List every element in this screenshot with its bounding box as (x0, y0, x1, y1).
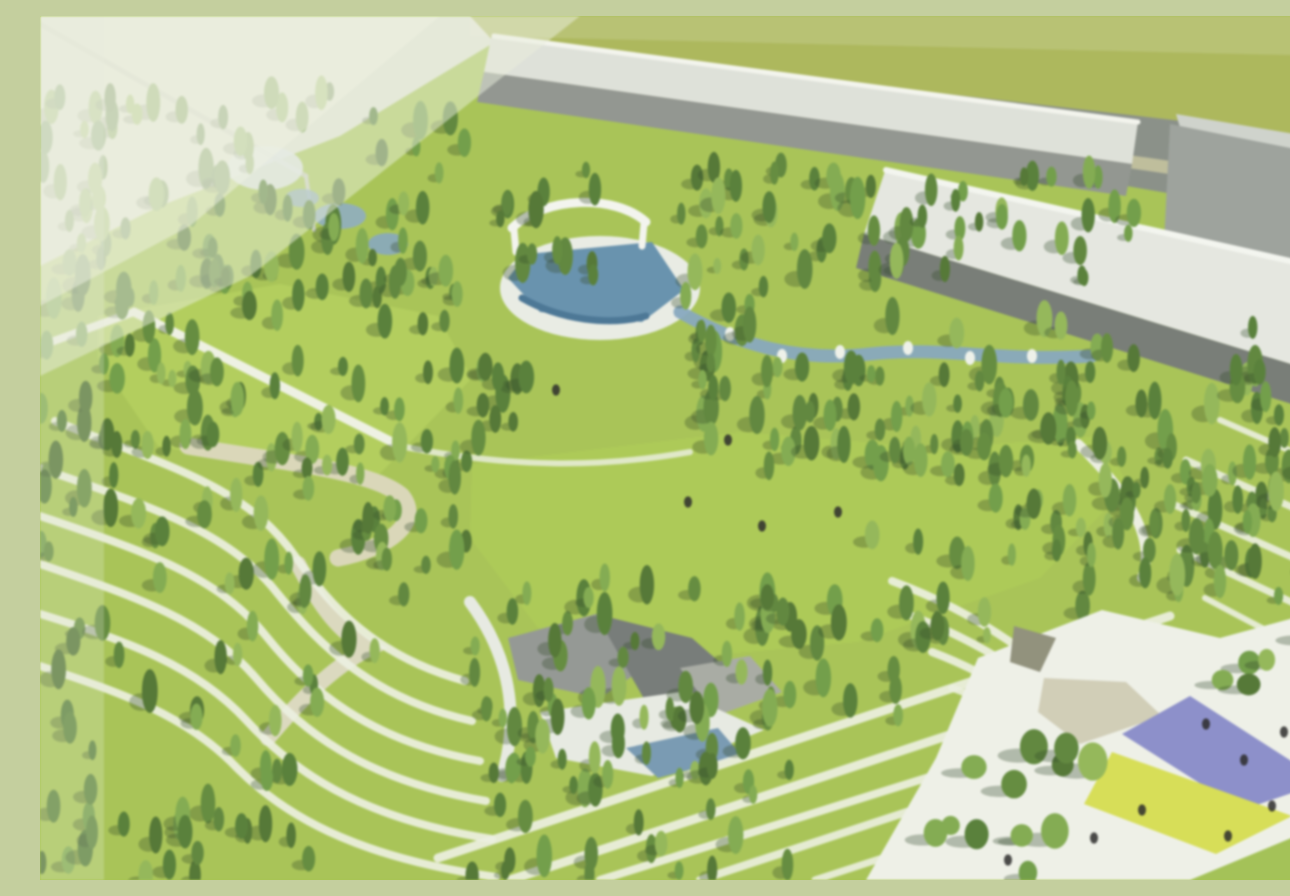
park-aerial-rendering (40, 16, 1290, 880)
glare-veil (40, 16, 1290, 880)
park-svg (40, 16, 1290, 880)
